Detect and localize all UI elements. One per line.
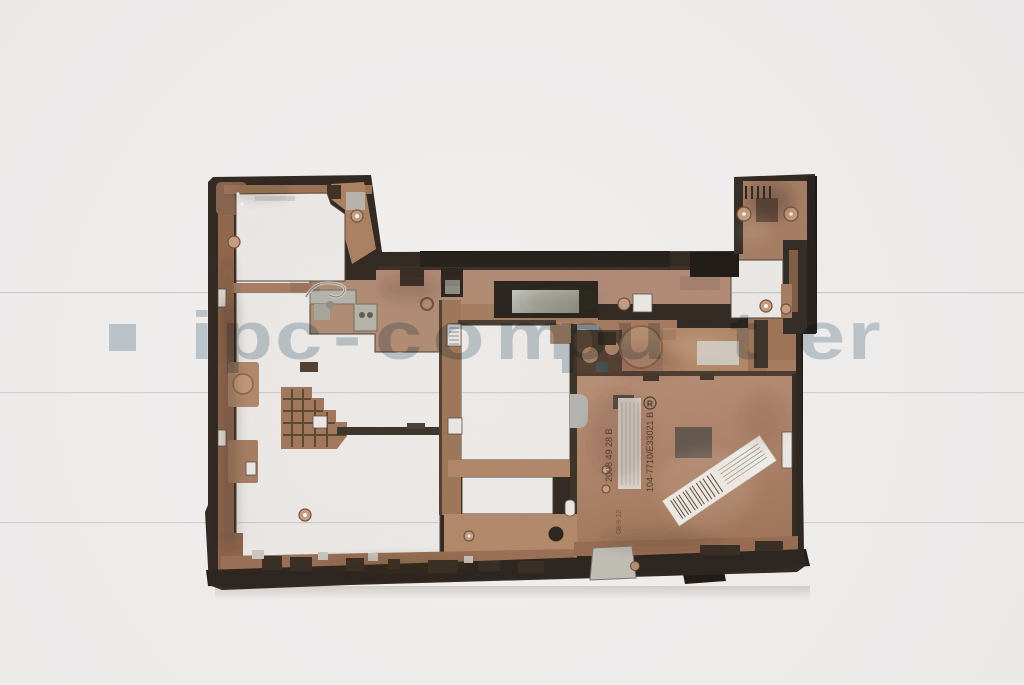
svg-text:c: c — [275, 298, 322, 374]
svg-text:p: p — [221, 298, 273, 374]
svg-text:e: e — [798, 298, 845, 374]
svg-text:t: t — [730, 298, 758, 374]
svg-text:r: r — [848, 298, 881, 374]
svg-text:u: u — [614, 298, 666, 374]
svg-text:-: - — [333, 298, 361, 374]
svg-text:c: c — [375, 298, 422, 374]
svg-text:p: p — [556, 298, 608, 374]
svg-text:o: o — [433, 298, 485, 374]
svg-text:i: i — [190, 298, 214, 374]
